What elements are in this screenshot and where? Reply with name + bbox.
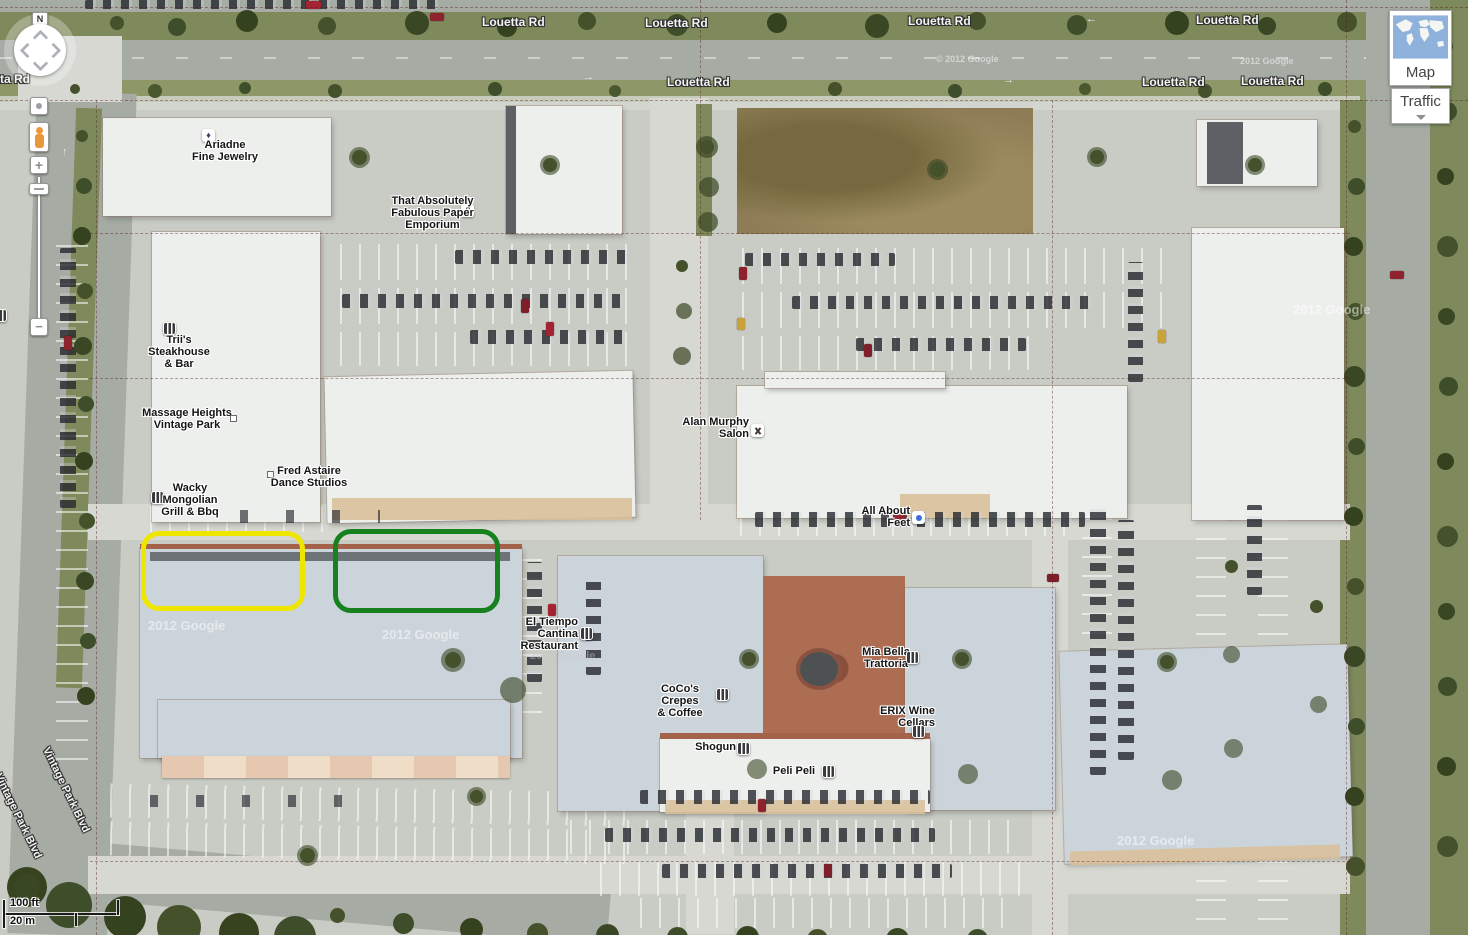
dining-icon[interactable] <box>822 765 835 778</box>
dining-icon[interactable] <box>0 309 7 322</box>
poi-label-el-tiempo[interactable]: El Tiempo Cantina Restaurant <box>498 617 578 653</box>
map-square-marker[interactable] <box>230 415 237 422</box>
scale-tick-metric <box>75 913 77 926</box>
building-trim <box>660 733 930 739</box>
poi-label-all-about-feet[interactable]: All About Feet <box>830 506 910 530</box>
poi-label-fred-astaire[interactable]: Fred Astaire Dance Studios <box>254 466 364 490</box>
tree <box>352 150 367 165</box>
road-label-louetta: Louetta Rd <box>667 75 730 89</box>
parked-cars <box>240 510 380 523</box>
scale-imperial-label: 100 ft <box>10 897 39 909</box>
pegman-control[interactable] <box>29 122 49 152</box>
tree <box>955 652 969 666</box>
car <box>739 267 747 280</box>
poi-label-cocos-crepes[interactable]: CoCo's Crepes & Coffee <box>641 684 719 720</box>
zoom-slider-handle[interactable] <box>29 183 49 195</box>
scale-tick-right <box>117 900 119 915</box>
parked-cars <box>1118 520 1134 760</box>
dining-icon[interactable] <box>906 651 919 664</box>
building-roof-detail <box>1207 122 1243 184</box>
pan-up-arrow[interactable] <box>33 30 49 46</box>
tree-row-verge <box>70 84 80 94</box>
building-row-a-east <box>1192 228 1344 520</box>
car <box>824 864 832 877</box>
zoom-in-button[interactable]: + <box>30 156 48 174</box>
tree <box>1090 150 1104 164</box>
google-watermark: 2012 Google <box>1240 56 1294 66</box>
satellite-map[interactable]: → → ← ↑ 2012 Google 2012 Google 2012 Goo… <box>0 0 1468 935</box>
google-watermark: 2012 Google <box>1293 302 1370 317</box>
poi-label-peli-peli[interactable]: Peli Peli <box>765 766 823 778</box>
road-arrow: → <box>1003 74 1014 86</box>
tree-row-median <box>110 16 124 30</box>
entry-drive-median <box>696 104 712 236</box>
road-label-louetta: Louetta Rd <box>908 14 971 28</box>
parcel-line <box>1052 100 1053 935</box>
scale-tick-left <box>3 900 5 928</box>
pan-left-arrow[interactable] <box>20 43 36 59</box>
road-label-louetta: Louetta Rd <box>1241 74 1304 88</box>
building-row-b-west-ext <box>158 700 510 758</box>
tree <box>1248 158 1262 172</box>
google-watermark: © 2012 Google <box>936 54 999 64</box>
traffic-button-label: Traffic <box>1392 93 1449 110</box>
road-arrow: ← <box>1086 13 1097 25</box>
parked-cars <box>150 795 370 807</box>
parked-cars <box>60 248 76 508</box>
highlight-rectangle-yellow <box>141 531 305 611</box>
tree <box>1310 600 1323 613</box>
poi-label-triis-steakhouse[interactable]: Trii's Steakhouse & Bar <box>129 335 229 371</box>
map-button-label: Map <box>1390 64 1451 81</box>
parked-cars <box>792 296 1092 309</box>
tree <box>700 140 714 154</box>
tree <box>930 162 945 177</box>
tree <box>1225 560 1238 573</box>
reset-view-button[interactable] <box>30 97 48 115</box>
road-label-louetta: Louetta Rd <box>1196 13 1259 27</box>
poi-label-wacky-mongolian[interactable]: Wacky Mongolian Grill & Bbq <box>140 483 240 519</box>
reset-view-dot <box>36 103 42 109</box>
poi-label-massage-heights[interactable]: Massage Heights Vintage Park <box>132 408 242 432</box>
parcel-line <box>90 233 1350 234</box>
dining-icon[interactable] <box>716 688 729 701</box>
car <box>758 799 766 812</box>
scale-bar: 100 ft 20 m <box>3 896 128 932</box>
parked-cars <box>640 790 930 804</box>
car <box>548 604 556 616</box>
road-label-louetta: Louetta Rd <box>1142 75 1205 89</box>
parcel-line <box>90 861 1350 862</box>
world-map-thumbnail <box>1393 15 1448 59</box>
chevron-down-icon <box>1416 115 1426 120</box>
scissors-icon[interactable] <box>751 424 764 437</box>
tree-column-right-west <box>1348 120 1361 133</box>
parked-cars <box>1128 262 1143 382</box>
scale-metric-label: 20 m <box>10 915 35 927</box>
building-roof-detail <box>506 106 516 234</box>
tree <box>445 652 461 668</box>
poi-label-alan-murphy[interactable]: Alan Murphy Salon <box>645 417 749 441</box>
right-road-verge-east <box>1430 0 1468 935</box>
building-ariadne <box>103 118 331 216</box>
tree-line-bottom <box>330 908 345 923</box>
zoom-out-button[interactable]: − <box>30 318 48 336</box>
pegman-icon-body <box>35 134 44 148</box>
car <box>864 344 872 357</box>
parked-cars <box>1247 505 1262 595</box>
building-paper-emporium <box>506 106 622 234</box>
poi-label-ariadne[interactable]: Ariadne Fine Jewelry <box>165 140 285 164</box>
parked-cars <box>455 250 627 264</box>
tree <box>543 158 557 172</box>
car <box>737 318 745 330</box>
car <box>1047 574 1059 582</box>
highlight-rectangle-green <box>333 529 500 613</box>
traffic-button[interactable]: Traffic <box>1391 88 1450 124</box>
google-watermark: 2012 Google <box>382 627 459 642</box>
tree <box>470 790 483 803</box>
car <box>430 13 444 21</box>
car <box>546 322 554 336</box>
parcel-line <box>1346 0 1347 935</box>
google-watermark: 2012 Google <box>1117 833 1194 848</box>
fountain <box>800 652 838 686</box>
car <box>1158 330 1166 343</box>
road-arrow: → <box>583 71 594 83</box>
zoom-slider-handle-line <box>34 188 44 190</box>
dirt-lot <box>737 108 1033 234</box>
parked-cars <box>1090 505 1106 775</box>
map-type-button[interactable]: Map <box>1389 10 1452 86</box>
parked-cars <box>662 864 952 878</box>
parked-cars <box>856 338 1026 351</box>
dining-icon[interactable] <box>580 627 593 640</box>
pan-right-arrow[interactable] <box>46 43 62 59</box>
parked-cars <box>342 294 624 308</box>
poi-label-paper-emporium[interactable]: That Absolutely Fabulous Paper Emporium <box>380 196 485 232</box>
pan-down-arrow[interactable] <box>33 56 49 72</box>
tree <box>1160 655 1174 669</box>
parcel-line <box>90 378 1350 379</box>
poi-label-shogun[interactable]: Shogun <box>678 742 736 754</box>
road-label-louetta: Louetta Rd <box>645 16 708 30</box>
parcel-line <box>0 7 1468 8</box>
dining-icon[interactable] <box>912 725 925 738</box>
car <box>521 299 529 313</box>
zoom-slider-track[interactable] <box>37 176 41 324</box>
pegman-icon <box>36 127 43 134</box>
right-road <box>1366 0 1430 935</box>
car <box>64 336 72 350</box>
parked-cars <box>745 253 895 266</box>
parked-cars <box>605 828 935 842</box>
car <box>1390 271 1404 279</box>
parking-rows <box>640 898 1020 928</box>
tree <box>676 260 688 272</box>
tree <box>742 652 756 666</box>
road-label-louetta: Louetta Rd <box>482 15 545 29</box>
foot-care-icon[interactable] <box>912 511 925 524</box>
storefront-band <box>162 756 510 778</box>
pan-control[interactable] <box>14 24 66 76</box>
dining-icon[interactable] <box>737 742 750 755</box>
tree-column-blvd <box>76 130 88 142</box>
road-arrow: ↑ <box>62 146 68 158</box>
building-roof-detail <box>765 372 945 388</box>
parcel-line <box>96 100 97 935</box>
google-watermark: 2012 Google <box>148 618 225 633</box>
parcel-line <box>0 100 1468 101</box>
